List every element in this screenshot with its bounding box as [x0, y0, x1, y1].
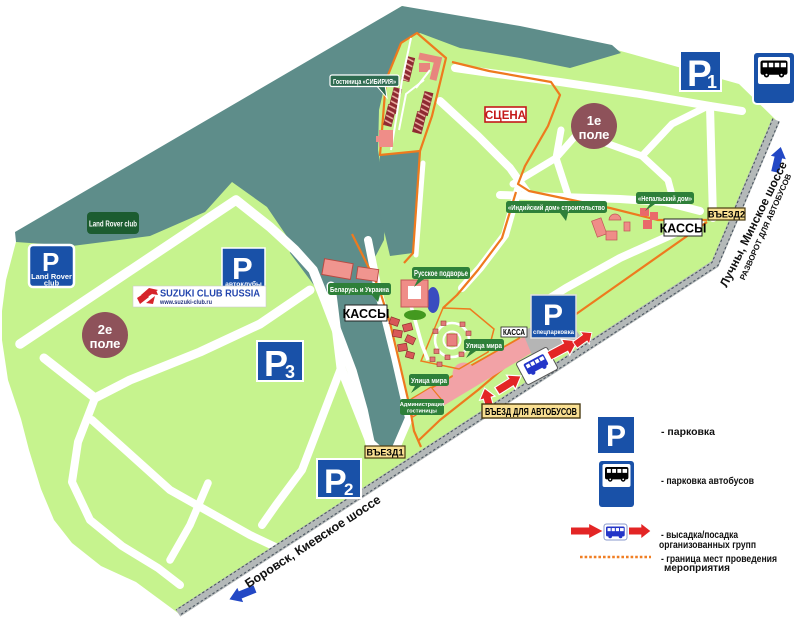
svg-text:КАССЫ: КАССЫ	[660, 222, 707, 236]
svg-text:Администрация: Администрация	[400, 402, 445, 408]
svg-text:спецпарковка: спецпарковка	[533, 329, 574, 336]
svg-text:гостиницы: гостиницы	[407, 409, 437, 415]
svg-text:организованных групп: организованных групп	[659, 540, 756, 551]
svg-text:Улица мира: Улица мира	[411, 376, 448, 385]
svg-text:Беларусь и Украина: Беларусь и Украина	[330, 285, 390, 294]
svg-text:Русское подворье: Русское подворье	[414, 269, 468, 278]
svg-text:Гостиница «СИБИРИЯ»: Гостиница «СИБИРИЯ»	[333, 77, 396, 86]
svg-text:- парковка: - парковка	[661, 427, 715, 438]
svg-text:www.suzuki-club.ru: www.suzuki-club.ru	[159, 300, 212, 306]
svg-text:P: P	[606, 420, 626, 453]
svg-text:ВЪЕЗД1: ВЪЕЗД1	[367, 448, 404, 458]
svg-text:СЦЕНА: СЦЕНА	[485, 110, 526, 122]
svg-text:«Непальский дом»: «Непальский дом»	[638, 194, 692, 203]
svg-text:поле: поле	[579, 127, 610, 142]
svg-text:2е: 2е	[98, 322, 112, 337]
svg-text:КАССЫ: КАССЫ	[343, 307, 390, 321]
svg-text:ВЪЕЗД2: ВЪЕЗД2	[708, 210, 745, 220]
svg-text:Улица мира: Улица мира	[466, 341, 503, 350]
svg-text:club: club	[44, 279, 60, 288]
svg-text:Land Rover club: Land Rover club	[89, 220, 137, 229]
svg-text:поле: поле	[90, 336, 121, 351]
svg-text:P: P	[543, 299, 563, 332]
svg-text:КАССА: КАССА	[503, 328, 525, 337]
svg-text:«Индийский дом» строительство: «Индийский дом» строительство	[508, 203, 605, 212]
svg-text:- парковка автобусов: - парковка автобусов	[661, 475, 754, 487]
svg-text:SUZUKI CLUB RUSSIA: SUZUKI CLUB RUSSIA	[160, 289, 260, 300]
svg-text:мероприятия: мероприятия	[664, 563, 730, 574]
svg-text:1е: 1е	[587, 113, 601, 128]
svg-text:3: 3	[285, 362, 295, 382]
svg-text:ВЪЕЗД ДЛЯ АВТОБУСОВ: ВЪЕЗД ДЛЯ АВТОБУСОВ	[485, 406, 577, 418]
svg-text:2: 2	[344, 480, 353, 499]
svg-text:1: 1	[707, 72, 717, 92]
